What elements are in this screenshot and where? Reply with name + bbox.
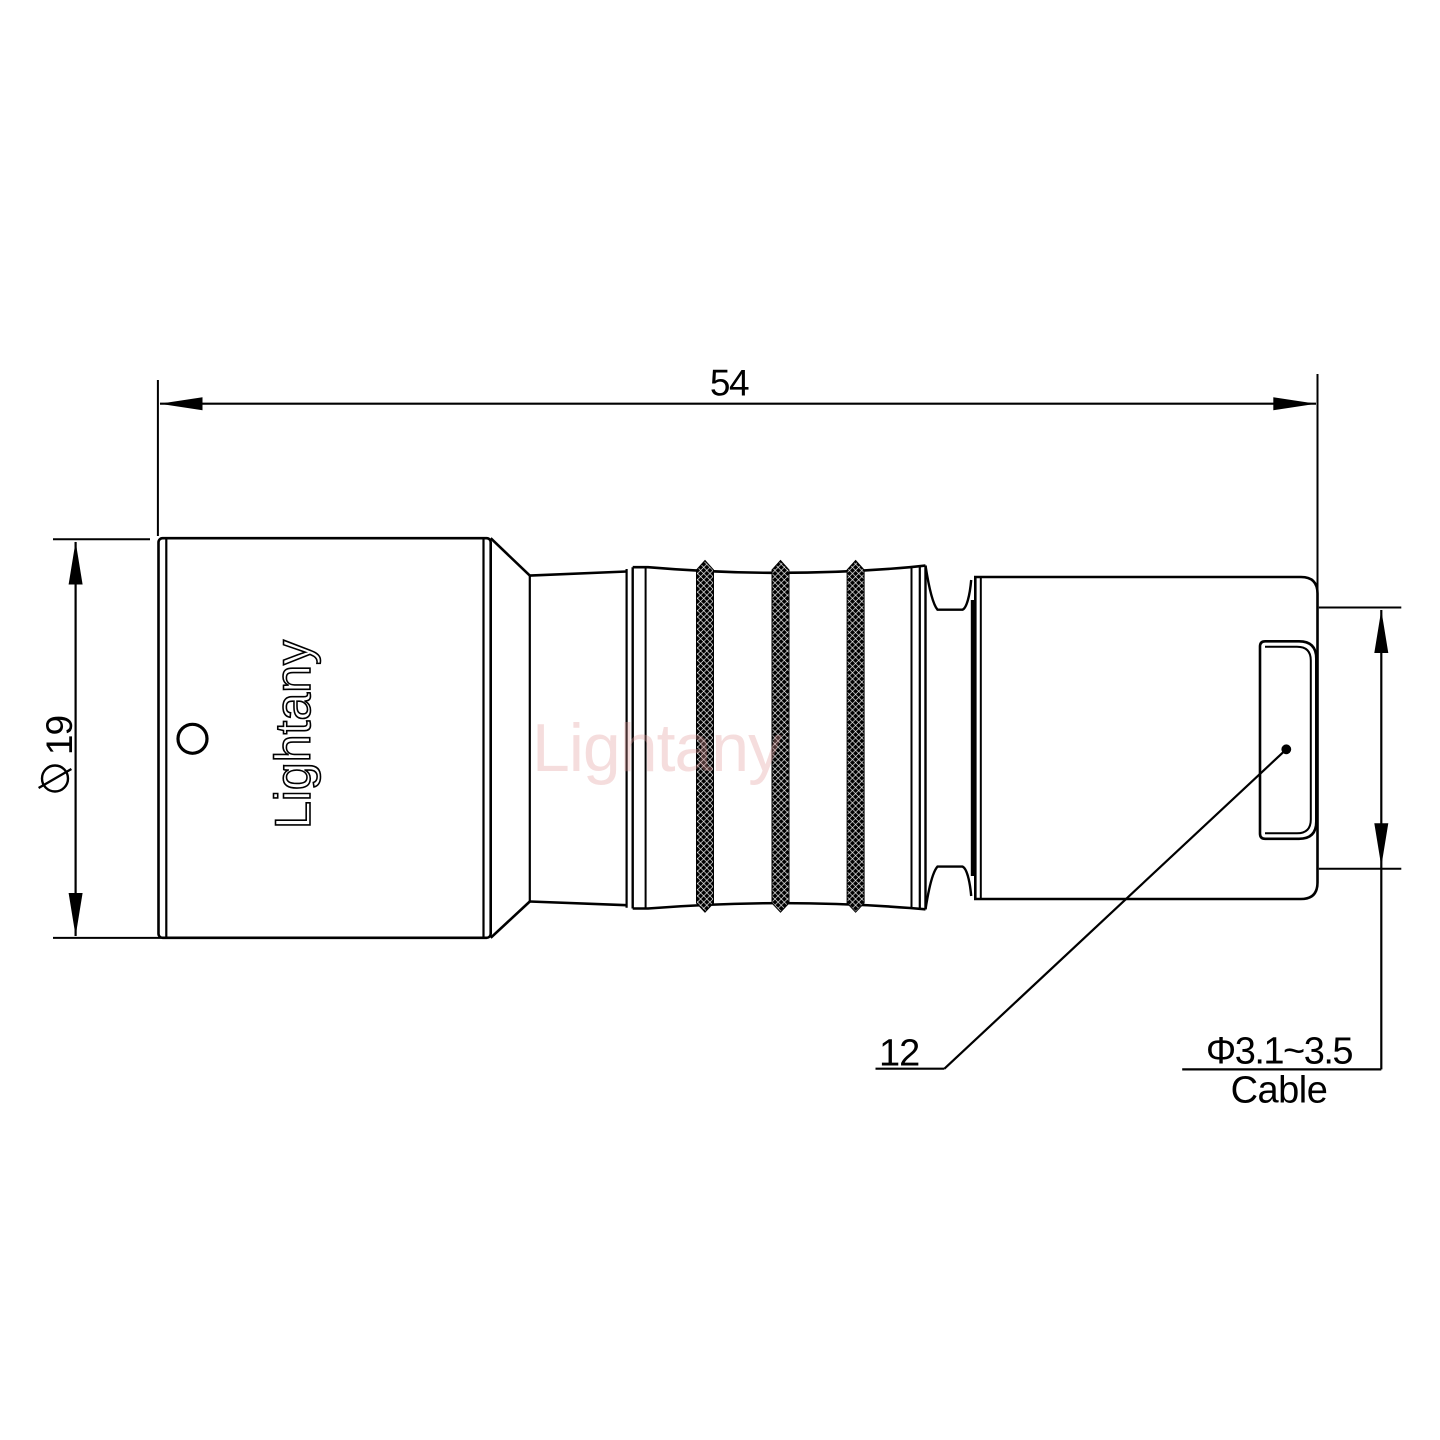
svg-text:54: 54 bbox=[710, 363, 749, 404]
svg-text:Lightany: Lightany bbox=[265, 640, 321, 829]
svg-text:Lightany: Lightany bbox=[532, 710, 782, 786]
svg-text:Cable: Cable bbox=[1231, 1070, 1328, 1112]
svg-text:19: 19 bbox=[39, 716, 80, 755]
svg-text:Φ3.1~3.5: Φ3.1~3.5 bbox=[1206, 1030, 1353, 1072]
